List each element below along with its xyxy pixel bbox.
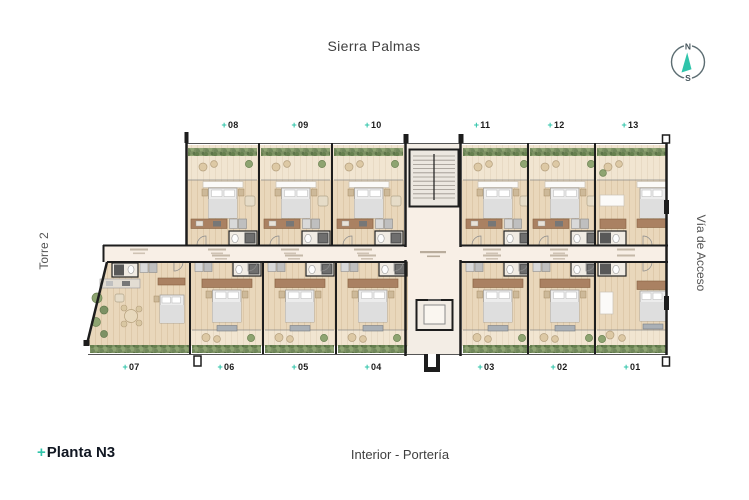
unit-plan-01 [596,255,667,354]
floor-title: +Planta N3 [37,444,115,461]
unit-plan-12 [529,145,600,254]
unit-label-07: +07 [113,362,149,372]
unit-label-01: +01 [614,362,650,372]
unit-plan-10 [333,145,404,254]
floor-plan [0,0,749,500]
bottom-row-units [191,255,600,354]
unit-plan-02 [529,255,600,354]
unit-plan-05 [264,255,335,354]
unit-plan-04 [337,255,408,354]
unit-label-08: +08 [212,120,248,130]
footer-caption: Interior - Portería [351,447,449,462]
unit-label-03: +03 [468,362,504,372]
unit-label-12: +12 [538,120,574,130]
unit-plan-03 [462,255,533,354]
unit-plan-13 [596,145,667,251]
unit-label-05: +05 [282,362,318,372]
unit-label-11: +11 [464,120,500,130]
top-row-units [187,145,600,254]
plus-icon: + [37,444,46,461]
unit-plan-08 [187,145,258,254]
unit-plan-09 [260,145,331,254]
unit-plan-07 [88,249,190,354]
unit-label-09: +09 [282,120,318,130]
unit-label-10: +10 [355,120,391,130]
unit-label-04: +04 [355,362,391,372]
unit-label-13: +13 [612,120,648,130]
floorplan-page: Sierra Palmas N S Torre 2 Vía de Acceso [0,0,749,500]
unit-label-06: +06 [208,362,244,372]
stairwell [410,150,459,207]
unit-plan-06 [191,255,262,354]
corridor [103,245,668,262]
unit-plan-11 [462,145,533,254]
unit-label-02: +02 [541,362,577,372]
elevator [417,300,453,330]
